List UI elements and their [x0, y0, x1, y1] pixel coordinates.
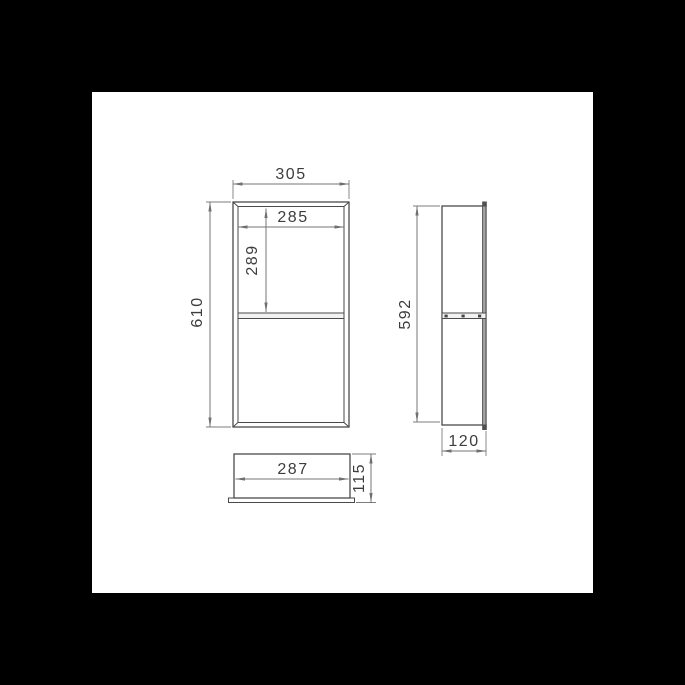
paper-background: [92, 92, 593, 593]
side-height-label: 592: [397, 298, 414, 329]
bottom-depth-label: 115: [351, 463, 368, 493]
front-height-label: 610: [189, 296, 206, 327]
front-opening-height-label: 289: [244, 244, 261, 275]
side-top-tab: [482, 202, 487, 207]
dimension-drawing: 305 610 285 289: [0, 0, 685, 685]
front-inner-width-label: 285: [277, 209, 308, 226]
bottom-inner-width-label: 287: [277, 461, 308, 478]
side-depth-label: 120: [448, 433, 479, 450]
front-middle-shelf: [238, 313, 344, 319]
side-bottom-tab: [482, 425, 487, 431]
front-width-label: 305: [275, 166, 306, 183]
technical-drawing-canvas: 305 610 285 289: [0, 0, 685, 685]
